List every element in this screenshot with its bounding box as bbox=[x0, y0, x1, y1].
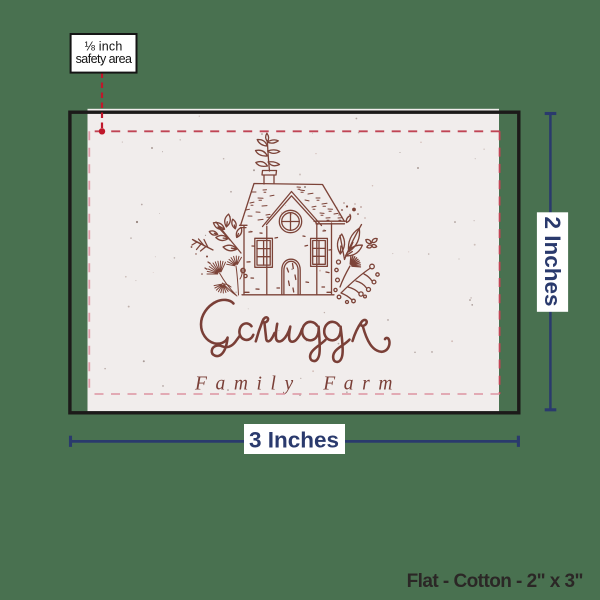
svg-text:safety area: safety area bbox=[76, 52, 132, 66]
svg-text:3 Inches: 3 Inches bbox=[249, 427, 339, 452]
svg-text:Flat - Cotton - 2" x 3": Flat - Cotton - 2" x 3" bbox=[407, 571, 583, 592]
svg-text:Family Farm: Family Farm bbox=[194, 374, 401, 395]
svg-text:2 Inches: 2 Inches bbox=[540, 216, 565, 306]
